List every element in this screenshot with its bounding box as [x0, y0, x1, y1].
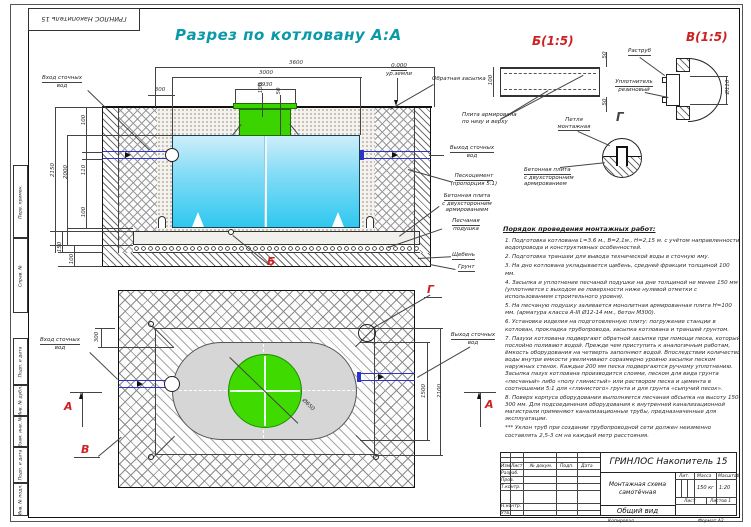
tb-row-razrab: Разраб. [501, 471, 519, 476]
note-item: 3. На дно котлована укладывается щебень,… [503, 263, 741, 277]
plan-detail-callout [358, 324, 376, 342]
dim-line-930 [235, 89, 295, 90]
tb-lit: Лит. [679, 474, 689, 479]
dim-line-3000 [172, 77, 362, 78]
dim-300: 300 [148, 87, 172, 93]
tb-row-nkontr: Н.контр. [501, 504, 521, 509]
notes-list: 1. Подготовка котлована L=3.6 м., B=2,1м… [503, 238, 741, 442]
note-item: 6. Установка изделия на подготовленную п… [503, 319, 741, 333]
detail-v-wall-top [676, 58, 690, 72]
strip-sprav-no: Справ. № [13, 238, 28, 313]
gravel-label: Щебень [452, 252, 475, 260]
detail-g-title: Г [616, 110, 624, 124]
tb-row-utv: Утв. [501, 511, 510, 516]
inlet-pipe-top [103, 151, 172, 152]
tb-h-date: Дата [581, 464, 593, 469]
detail-b-dim-100: 100 [488, 70, 494, 90]
tb-h-list: Лист [511, 464, 522, 469]
outlet-socket [360, 150, 364, 160]
plan-outlet-arrow [378, 374, 384, 380]
tb-row-tkontr: Т.контр. [501, 485, 521, 490]
note-item: 4. Засыпка и уплотнение песчаной подушки… [503, 280, 741, 301]
strip-perv-primen: Перв. примен. [13, 165, 28, 238]
plan-marker-v: В [81, 443, 89, 456]
sandcement-label: Пескоцемент (пропорция 5:1) [450, 173, 498, 187]
anchor-left [158, 216, 166, 228]
dim-2150: 2150 [50, 155, 56, 185]
dim-110: 110 [81, 160, 87, 180]
excavation-outline-right [430, 107, 431, 267]
note-item: 7. Пазухи котлована подвергают обратной … [503, 336, 741, 393]
concrete-slab [133, 231, 420, 245]
tb-scale-value: 1:20 [719, 485, 730, 491]
tb-scale: Масштаб [718, 474, 739, 479]
dim-line-300t [148, 95, 175, 96]
anchor-right [366, 216, 374, 228]
section-title: Разрез по котловану А:А [175, 26, 402, 44]
tb-mass: Масса [697, 474, 711, 479]
dim-100-top: 100 [81, 110, 87, 130]
strip-inv-podl: Инв. № подл. [13, 483, 28, 516]
marker-a-left-arrow [79, 392, 83, 399]
note-item: 1. Подготовка котлована L=3.6 м., B=2,1м… [503, 238, 741, 252]
neck-body [239, 109, 291, 136]
dim-100-bottom: 100 [81, 202, 87, 222]
outlet-pipe-bottom [360, 158, 431, 159]
detail-g-slab-label: Бетонная плита с двухсторонним армирован… [524, 167, 574, 188]
plan-marker-a-right: A [485, 398, 494, 411]
tb-h-sign: Подп. [560, 464, 574, 469]
strip-podp-data-1: Подп. и дата [13, 338, 28, 385]
note-item: *** Уклон труб при создании трубопроводн… [503, 425, 741, 439]
dim-3600: 3600 [276, 60, 316, 66]
section-outlet-label: Выход сточных вод [444, 145, 500, 159]
plan-dim-1500: 1500 [421, 376, 427, 406]
plan-marker-a-left: A [64, 400, 73, 413]
strip-podp-data-2: Подп. и дата [13, 447, 28, 483]
dim-50: 50 [276, 81, 282, 101]
sand-cushion-layer [133, 245, 420, 253]
notes-title: Порядок проведения монтажных работ: [503, 225, 656, 233]
plan-outlet-label: Выход сточных вод [444, 332, 502, 346]
detail-v-socket [666, 74, 680, 106]
section-marker-b: Б [267, 255, 275, 268]
dim-100-slab: 100 [69, 249, 75, 269]
detail-v-dim: Ø110 [725, 75, 731, 99]
plan-inlet-arrow [137, 381, 143, 387]
note-item: 5. На песчаную подушку заливается моноли… [503, 303, 741, 317]
section-inlet-label: Вход сточных вод [34, 75, 90, 89]
soil-label: Грунт [458, 264, 475, 272]
tb-row-prov: Пров. [501, 478, 514, 483]
strip-inv-dubl: Инв. № дубл. [13, 385, 28, 416]
strip-vzam-inv: Взам. инв. № [13, 416, 28, 447]
detail-b-title: Б(1:5) [532, 34, 574, 48]
inlet-flow-arrow [125, 152, 131, 158]
plan-dim-2100: 2100 [437, 376, 443, 406]
inlet-socket-circle [165, 148, 179, 162]
tb-sheets: Листов 1 [710, 499, 731, 504]
outlet-flow-arrow [392, 152, 398, 158]
inlet-pipe-bottom [103, 158, 172, 159]
detail-v-wall-bottom [676, 106, 690, 120]
plan-inlet-socket [164, 376, 180, 392]
detail-v-seal-label: Уплотнитель резиновый [612, 79, 656, 93]
detail-b-dim-50a: 50 [602, 46, 608, 64]
corner-stamp-text: ГРИНЛОС Накопитель 15 [29, 9, 139, 30]
dim-100t: 100 [258, 78, 264, 98]
excavation-outline-left [102, 107, 103, 267]
detail-v-socket-label: Раструб [628, 48, 651, 56]
tb-sheet: Лист [684, 499, 695, 504]
dim-3000: 3000 [246, 70, 286, 76]
detail-b-dim-50b: 50 [602, 93, 608, 111]
tb-scheme: Монтажная схема самотёчная [600, 472, 675, 505]
tb-view: Общий вид [600, 505, 675, 516]
corner-stamp-box: ГРИНЛОС Накопитель 15 [28, 8, 140, 31]
tank-divider [264, 136, 267, 227]
plan-inlet-label: Вход сточных вод [32, 337, 88, 351]
note-item: 8. Поверх корпуса оборудования выполняет… [503, 395, 741, 424]
tb-doc-title: ГРИНЛОС Накопитель 15 [600, 452, 737, 472]
pit-wall-right [414, 107, 415, 253]
plan-marker-g: Г [427, 283, 434, 296]
detail-v-title: В(1:5) [686, 30, 728, 44]
tb-copy: Копировал [608, 519, 634, 524]
dim-150: 150 [57, 237, 63, 257]
plan-dim-300: 300 [94, 327, 100, 347]
mounting-loop [616, 146, 628, 166]
tb-mass-value: 150 кг [697, 485, 714, 491]
note-item: 2. Подготовка траншеи для вывода техниче… [503, 254, 741, 261]
dim-2000: 2000 [63, 157, 69, 187]
detail-g-loop-label: Петля монтажная [552, 117, 596, 131]
drawing-sheet: ГРИНЛОС Накопитель 15 Перв. примен. Спра… [0, 0, 751, 527]
tb-h-izm: Изм. [501, 464, 512, 469]
tb-h-doc: № докум. [530, 464, 552, 469]
cushion-label: Песчаная подушка [444, 218, 488, 232]
detail-b-rebar-bottom [504, 89, 596, 90]
level-label: 0.000 ур.земли [385, 63, 413, 77]
slab-label: Бетонная плита с двухсторонним армирован… [438, 193, 496, 214]
backfill-label: Обратная засыпка [432, 76, 486, 83]
tb-format: Формат А2 [698, 519, 724, 524]
marker-a-right-arrow [477, 392, 481, 399]
